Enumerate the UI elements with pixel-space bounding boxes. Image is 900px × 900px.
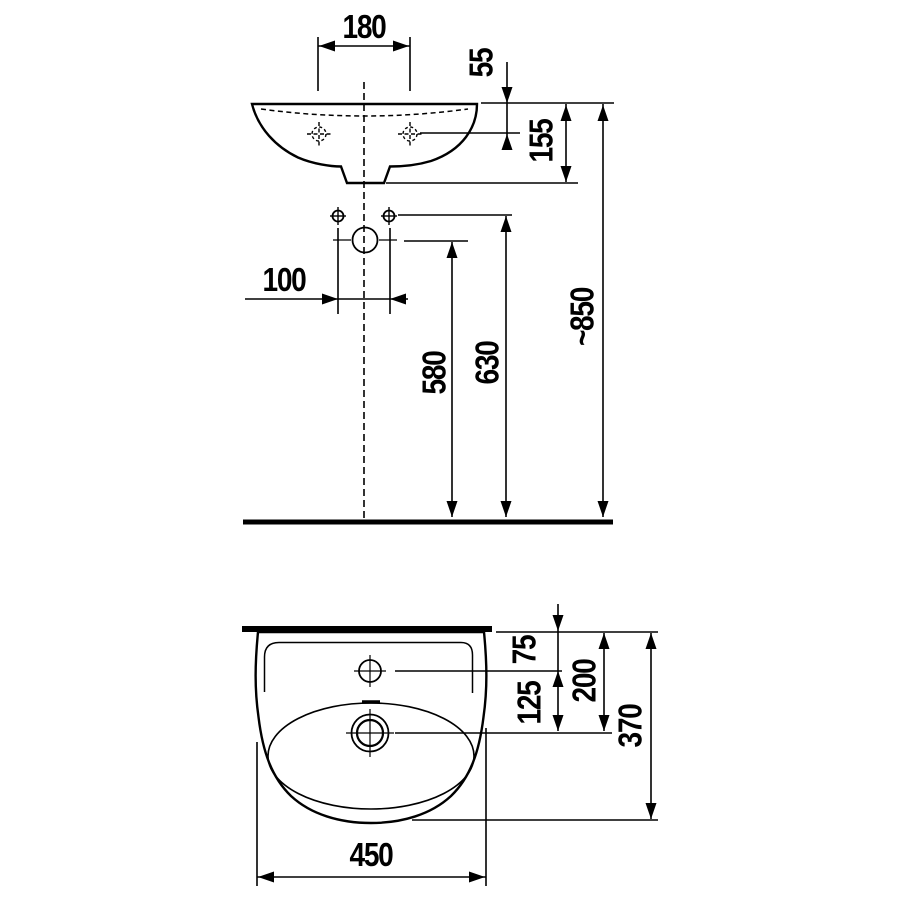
plan-view-tap-hole-icon bbox=[354, 655, 386, 687]
plan-view-drain-icon bbox=[346, 709, 394, 757]
dimension-75-125 bbox=[553, 604, 564, 731]
front-view-tap-hole-left-icon bbox=[307, 122, 331, 146]
dim-label-850: ~850 bbox=[566, 288, 599, 346]
dim-label-450: 450 bbox=[350, 838, 393, 871]
dim-label-125: 125 bbox=[513, 682, 546, 725]
dim-label-580: 580 bbox=[418, 352, 451, 395]
dim-label-100: 100 bbox=[263, 263, 306, 296]
drawing-linework bbox=[0, 0, 900, 900]
plan-view-inner-rim bbox=[265, 643, 473, 694]
dimension-55 bbox=[420, 62, 614, 150]
dim-label-55: 55 bbox=[465, 49, 498, 78]
dim-label-75: 75 bbox=[508, 636, 541, 665]
front-view-drain-outlet-icon bbox=[333, 228, 397, 253]
technical-drawing-canvas: 180 55 155 ~850 630 580 100 75 125 200 3… bbox=[0, 0, 900, 900]
front-view-tap-hole-right-icon bbox=[398, 122, 422, 146]
front-view-fixing-hole-right-icon bbox=[381, 207, 397, 225]
dim-label-200: 200 bbox=[568, 660, 601, 703]
plan-view-bowl bbox=[268, 703, 474, 809]
dim-label-155: 155 bbox=[525, 120, 558, 163]
front-view-fixing-hole-left-icon bbox=[330, 207, 346, 225]
dim-label-370: 370 bbox=[614, 705, 647, 748]
dim-label-630: 630 bbox=[471, 342, 504, 385]
dim-label-180: 180 bbox=[343, 10, 386, 43]
